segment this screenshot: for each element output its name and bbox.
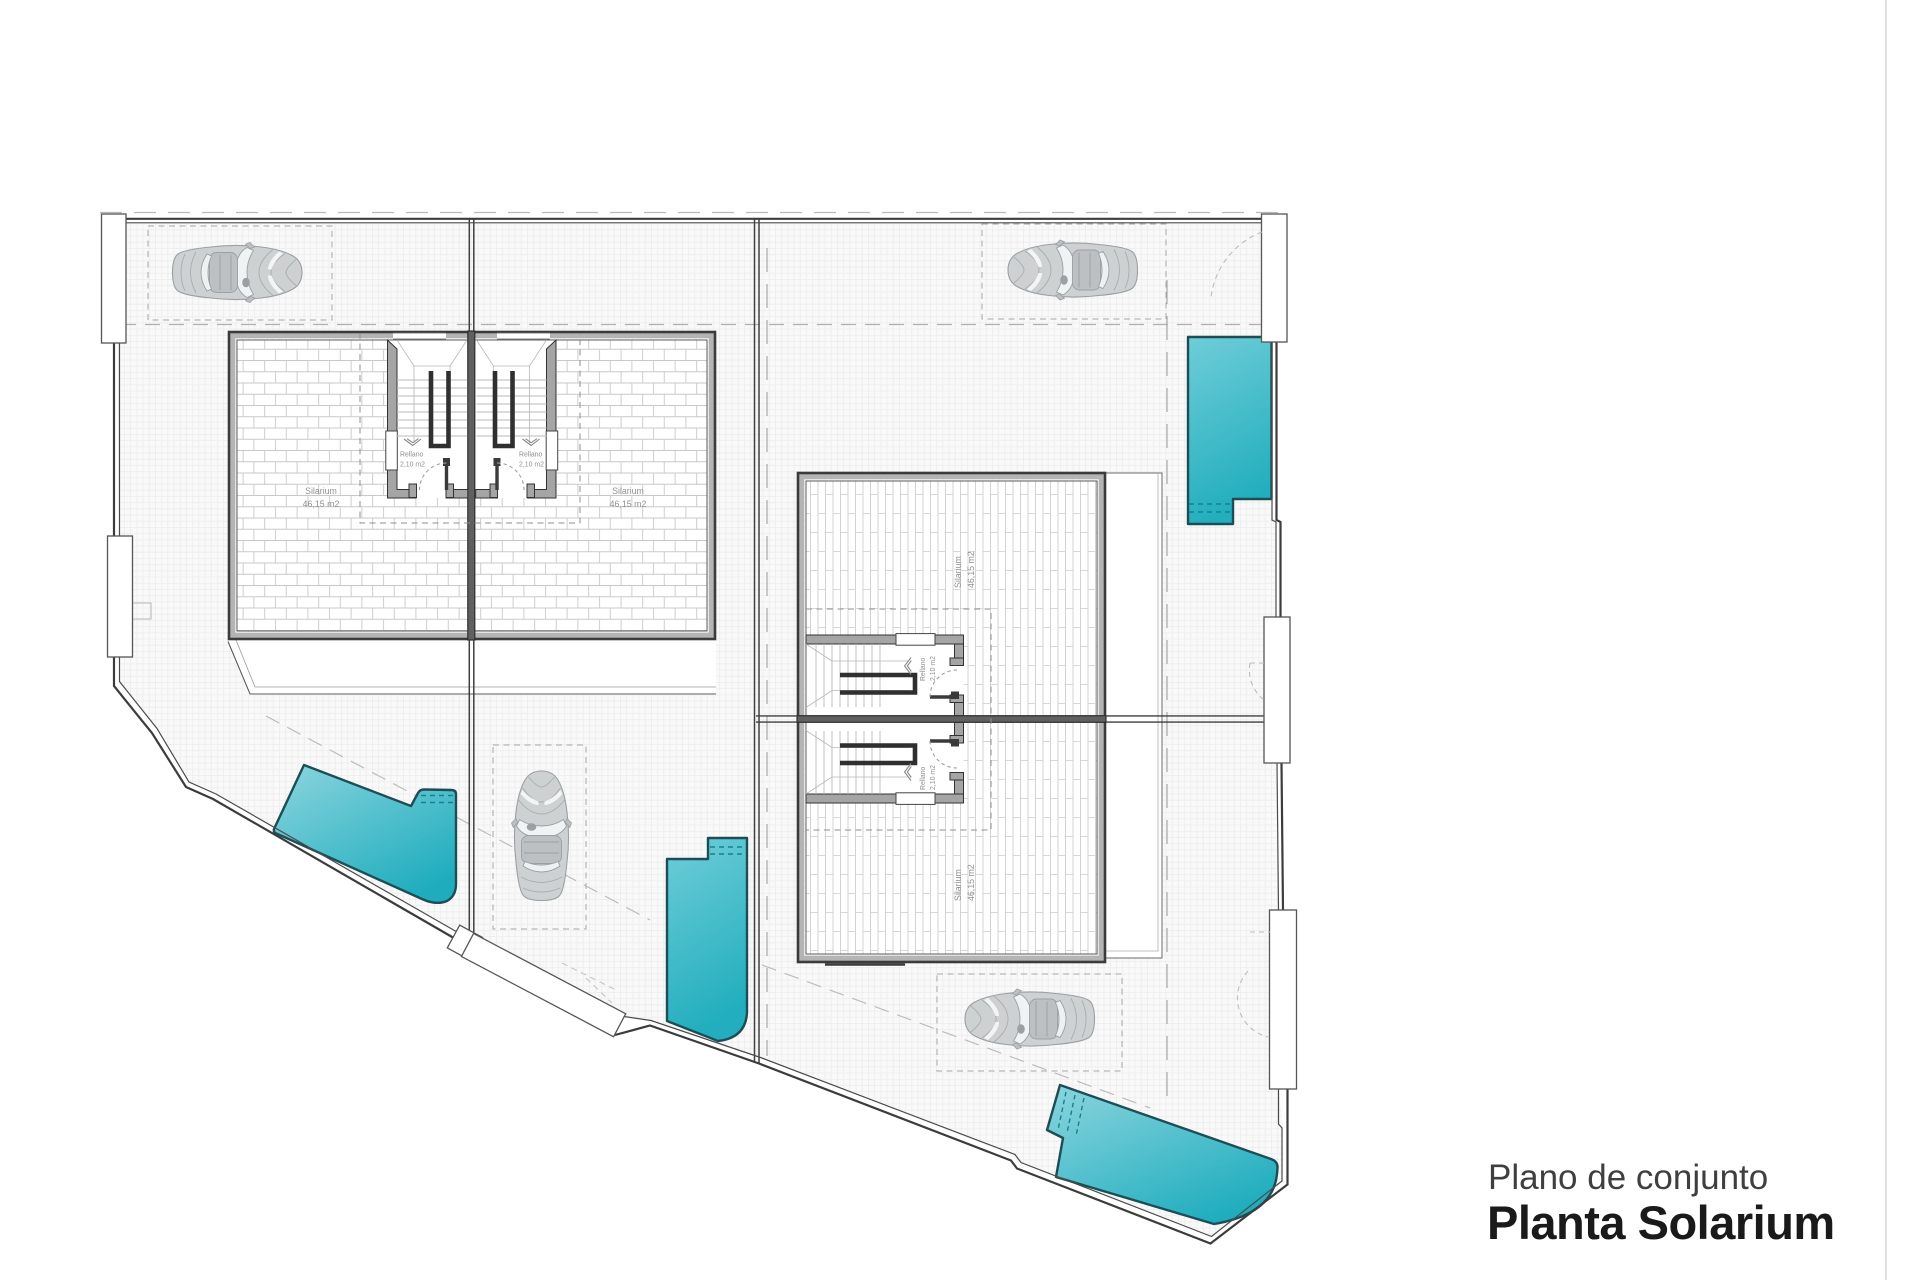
svg-text:Silarium: Silarium	[953, 869, 963, 901]
svg-text:Silarium: Silarium	[305, 486, 337, 496]
svg-text:Silarium: Silarium	[953, 556, 963, 588]
svg-text:46,15 m2: 46,15 m2	[966, 551, 976, 588]
svg-text:Planta Solarium: Planta Solarium	[1487, 1196, 1835, 1249]
svg-text:2,10 m2: 2,10 m2	[930, 656, 937, 681]
svg-text:46,15 m2: 46,15 m2	[610, 499, 647, 509]
svg-text:2,10 m2: 2,10 m2	[519, 462, 544, 469]
svg-text:Rellano: Rellano	[920, 766, 927, 790]
svg-text:Plano de conjunto: Plano de conjunto	[1488, 1158, 1768, 1197]
svg-text:Rellano: Rellano	[519, 452, 543, 459]
svg-text:46,15 m2: 46,15 m2	[303, 499, 340, 509]
svg-text:Rellano: Rellano	[920, 657, 927, 681]
svg-text:46,15 m2: 46,15 m2	[966, 864, 976, 901]
svg-text:Silarium: Silarium	[612, 486, 644, 496]
svg-text:2,10 m2: 2,10 m2	[400, 462, 425, 469]
svg-text:2,10 m2: 2,10 m2	[930, 765, 937, 790]
svg-text:Rellano: Rellano	[400, 452, 424, 459]
